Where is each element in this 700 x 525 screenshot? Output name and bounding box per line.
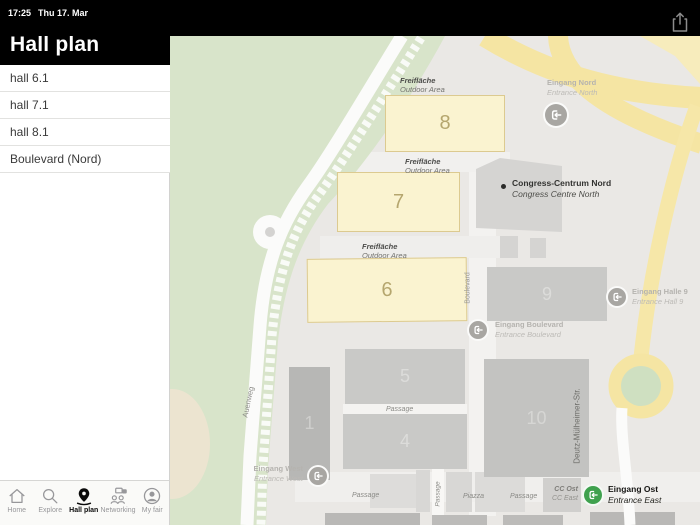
entrance-west-icon: [307, 465, 329, 487]
sidebar: Hall plan hall 6.1 hall 7.1 hall 8.1 Bou…: [0, 0, 170, 525]
hall-4-label: 4: [400, 431, 410, 452]
share-icon[interactable]: [670, 11, 690, 33]
networking-icon: [108, 486, 128, 506]
street-deutz-muelheimer: Deutz-Mülheimer-Str.: [573, 388, 582, 464]
hall-10-label: 10: [526, 408, 546, 429]
hall-4[interactable]: 4: [343, 414, 467, 469]
hall-list-item-7-1[interactable]: hall 7.1: [0, 92, 170, 119]
tab-home-label: Home: [7, 507, 26, 514]
hall-8[interactable]: 8: [385, 95, 505, 152]
entrance-ost-en: Entrance East: [608, 495, 661, 506]
entrance-nord-label: Eingang Nord Entrance North: [547, 78, 597, 98]
hall-1-label: 1: [304, 413, 314, 434]
piazza-label: Piazza: [463, 493, 484, 500]
outdoor-area-label-7: Freifläche Outdoor Area: [405, 157, 450, 176]
passage-label-2: Passage: [352, 492, 379, 499]
entrance-ost-icon: [582, 484, 604, 506]
home-icon: [7, 486, 27, 506]
hall-5[interactable]: 5: [345, 349, 465, 404]
entrance-halle-9-label: Eingang Halle 9 Entrance Hall 9: [632, 287, 688, 307]
entrance-west-label: Eingang West Entrance West: [208, 464, 303, 484]
outdoor-area-text: Outdoor Area: [400, 85, 445, 94]
tab-bar: Home Explore Hall plan: [0, 480, 170, 525]
tab-hall-plan[interactable]: Hall plan: [67, 481, 101, 525]
hall-list-item-8-1[interactable]: hall 8.1: [0, 119, 170, 146]
passage-label-4: Passage: [510, 493, 537, 500]
tab-home[interactable]: Home: [0, 481, 34, 525]
app-screen: 17:25 Thu 17. Mar Hall plan hall 6.1 hal…: [0, 0, 700, 525]
freiflaeche-text: Freifläche: [405, 157, 450, 166]
congress-marker-dot: [501, 184, 506, 189]
street-boulevard: Boulevard: [465, 272, 472, 304]
fairground-map[interactable]: 8 7 6 9 5 1 4 10 Freifläche Outdoor Area…: [170, 36, 700, 525]
hall-9-label: 9: [542, 284, 552, 305]
entrance-nord-de: Eingang Nord: [547, 78, 597, 88]
entrance-halle-9-en: Entrance Hall 9: [632, 297, 688, 307]
hall-7-label: 7: [393, 191, 404, 214]
passage-label-3: Passage: [435, 481, 442, 506]
entrance-boulevard-icon: [467, 319, 489, 341]
outdoor-area-text: Outdoor Area: [405, 166, 450, 175]
entrance-halle-9-de: Eingang Halle 9: [632, 287, 688, 297]
entrance-boulevard-en: Entrance Boulevard: [495, 330, 563, 340]
congress-en: Congress Centre North: [512, 189, 611, 200]
hall-6-label: 6: [381, 278, 392, 301]
hall-7[interactable]: 7: [337, 172, 460, 232]
outdoor-area-label-6: Freifläche Outdoor Area: [362, 242, 407, 261]
tab-networking[interactable]: Networking: [101, 481, 136, 525]
search-icon: [40, 486, 60, 506]
map-pin-icon: [74, 486, 94, 506]
entrance-halle-9-icon: [606, 286, 628, 308]
entrance-nord-icon: [543, 102, 569, 128]
hall-list-item-6-1[interactable]: hall 6.1: [0, 65, 170, 92]
hall-5-label: 5: [400, 366, 410, 387]
hall-9[interactable]: 9: [487, 267, 607, 321]
tab-hall-plan-label: Hall plan: [69, 507, 98, 514]
congress-centre-label: Congress-Centrum Nord Congress Centre No…: [512, 178, 611, 200]
hall-list-item-boulevard-nord[interactable]: Boulevard (Nord): [0, 146, 170, 173]
entrance-ost-de: Eingang Ost: [608, 484, 661, 495]
person-icon: [142, 486, 162, 506]
clock-time: 17:25: [8, 8, 31, 18]
entrance-boulevard-de: Eingang Boulevard: [495, 320, 563, 330]
entrance-ost-label: Eingang Ost Entrance East: [608, 484, 661, 506]
status-bar: 17:25 Thu 17. Mar: [0, 0, 700, 36]
passage-label-1: Passage: [386, 406, 413, 413]
hall-8-label: 8: [439, 112, 450, 135]
tab-networking-label: Networking: [101, 507, 136, 514]
outdoor-area-text: Outdoor Area: [362, 251, 407, 260]
entrance-west-de: Eingang West: [208, 464, 303, 474]
freiflaeche-text: Freifläche: [400, 76, 445, 85]
hall-list: hall 6.1 hall 7.1 hall 8.1 Boulevard (No…: [0, 65, 170, 173]
congress-de: Congress-Centrum Nord: [512, 178, 611, 189]
tab-my-fair-label: My fair: [142, 507, 163, 514]
tab-explore-label: Explore: [38, 507, 62, 514]
tab-explore[interactable]: Explore: [34, 481, 68, 525]
page-title: Hall plan: [10, 33, 99, 57]
outdoor-area-label-8: Freifläche Outdoor Area: [400, 76, 445, 95]
hall-6[interactable]: 6: [307, 257, 468, 323]
entrance-nord-en: Entrance North: [547, 88, 597, 98]
freiflaeche-text: Freifläche: [362, 242, 407, 251]
entrance-boulevard-label: Eingang Boulevard Entrance Boulevard: [495, 320, 563, 340]
entrance-west-en: Entrance West: [208, 474, 303, 484]
status-date: Thu 17. Mar: [38, 8, 88, 18]
tab-my-fair[interactable]: My fair: [136, 481, 170, 525]
